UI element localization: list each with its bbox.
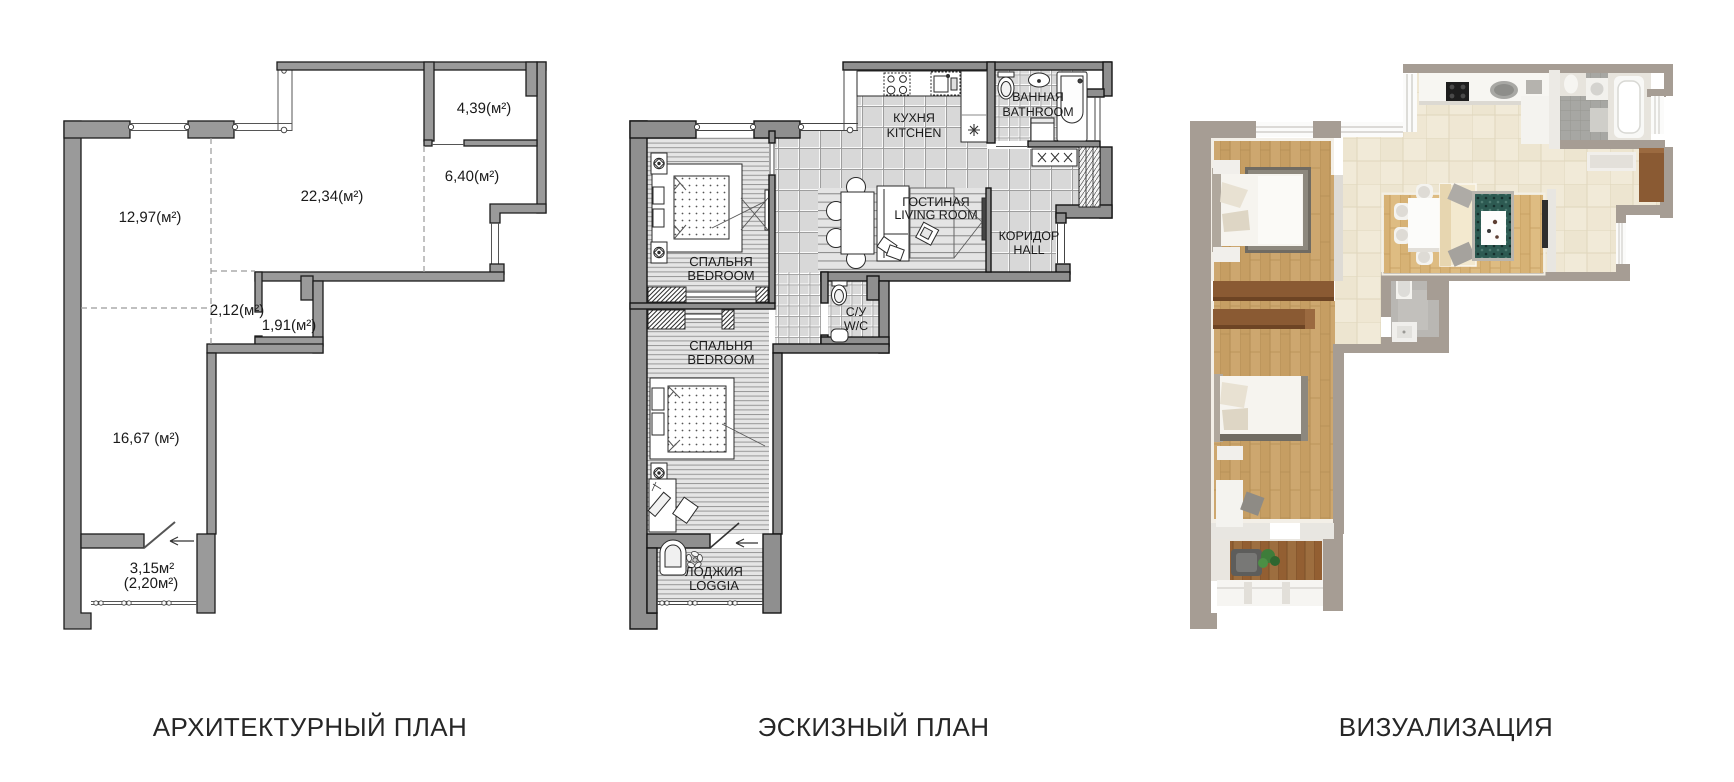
svg-text:ГОСТИНАЯ: ГОСТИНАЯ bbox=[902, 195, 969, 209]
svg-text:LIVING ROOM: LIVING ROOM bbox=[894, 208, 977, 222]
svg-text:4,39(м²): 4,39(м²) bbox=[457, 100, 512, 117]
svg-text:22,34(м²): 22,34(м²) bbox=[301, 188, 364, 205]
svg-text:АРХИТЕКТУРНЫЙ ПЛАН: АРХИТЕКТУРНЫЙ ПЛАН bbox=[153, 712, 467, 742]
svg-text:LOGGIA: LOGGIA bbox=[689, 578, 739, 593]
svg-text:КОРИДОР: КОРИДОР bbox=[999, 229, 1060, 243]
svg-text:W/C: W/C bbox=[844, 319, 868, 333]
svg-text:6,40(м²): 6,40(м²) bbox=[445, 168, 500, 185]
svg-text:1,91(м²): 1,91(м²) bbox=[262, 317, 317, 334]
svg-text:ЛОДЖИЯ: ЛОДЖИЯ bbox=[685, 564, 743, 579]
svg-text:HALL: HALL bbox=[1013, 243, 1044, 257]
svg-text:12,97(м²): 12,97(м²) bbox=[119, 209, 182, 226]
svg-text:KITCHEN: KITCHEN bbox=[887, 126, 942, 140]
svg-text:BEDROOM: BEDROOM bbox=[687, 268, 754, 283]
svg-text:КУХНЯ: КУХНЯ bbox=[893, 111, 935, 125]
svg-text:ВАННАЯ: ВАННАЯ bbox=[1012, 90, 1064, 104]
svg-text:ВИЗУАЛИЗАЦИЯ: ВИЗУАЛИЗАЦИЯ bbox=[1339, 712, 1553, 742]
svg-text:СПАЛЬНЯ: СПАЛЬНЯ bbox=[689, 338, 753, 353]
svg-text:ЭСКИЗНЫЙ ПЛАН: ЭСКИЗНЫЙ ПЛАН bbox=[758, 712, 990, 742]
svg-text:BATHROOM: BATHROOM bbox=[1002, 105, 1073, 119]
svg-text:BEDROOM: BEDROOM bbox=[687, 352, 754, 367]
svg-text:СПАЛЬНЯ: СПАЛЬНЯ bbox=[689, 254, 753, 269]
svg-text:16,67 (м²): 16,67 (м²) bbox=[112, 430, 179, 447]
svg-text:С/У: С/У bbox=[846, 305, 867, 319]
svg-text:(2,20м²): (2,20м²) bbox=[124, 575, 179, 592]
svg-text:2,12(м²): 2,12(м²) bbox=[210, 302, 265, 319]
